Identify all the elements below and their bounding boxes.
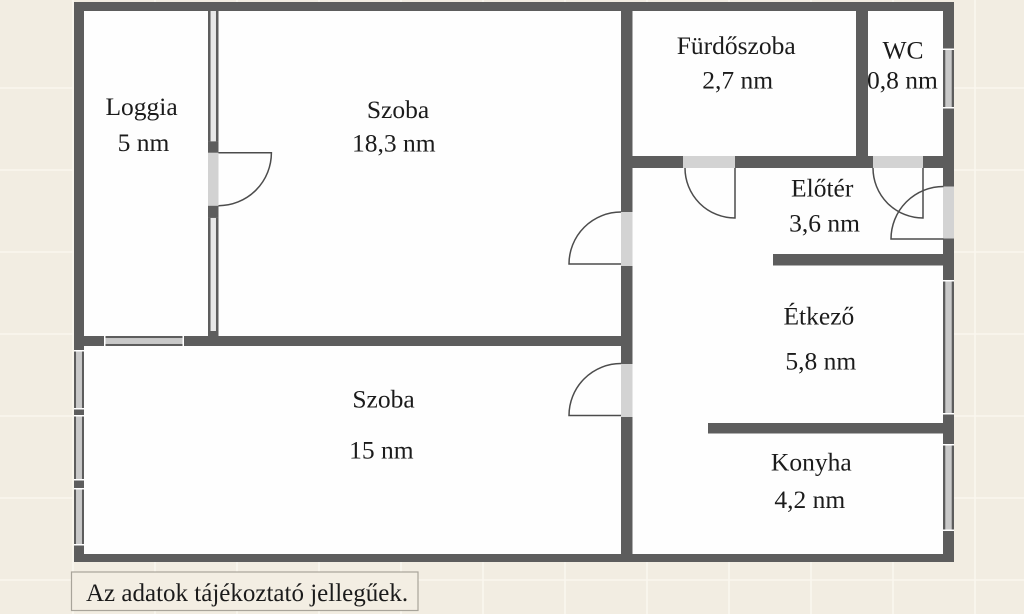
svg-text:Konyha: Konyha <box>771 448 852 477</box>
svg-text:Előtér: Előtér <box>791 174 854 203</box>
svg-text:18,3 nm: 18,3 nm <box>352 129 436 158</box>
svg-text:Szoba: Szoba <box>367 95 429 124</box>
svg-text:0,8 nm: 0,8 nm <box>867 66 938 95</box>
svg-text:Szoba: Szoba <box>352 384 414 413</box>
svg-text:Fürdőszoba: Fürdőszoba <box>677 31 796 60</box>
svg-text:15 nm: 15 nm <box>349 436 414 465</box>
svg-text:5,8 nm: 5,8 nm <box>785 346 856 375</box>
svg-text:Étkező: Étkező <box>783 301 854 330</box>
svg-text:Az adatok tájékoztató jellegűe: Az adatok tájékoztató jellegűek. <box>86 580 408 607</box>
svg-text:Loggia: Loggia <box>105 92 177 121</box>
svg-text:WC: WC <box>882 36 923 65</box>
svg-text:3,6 nm: 3,6 nm <box>789 209 860 238</box>
svg-text:2,7 nm: 2,7 nm <box>702 65 773 94</box>
svg-text:5 nm: 5 nm <box>118 128 170 157</box>
svg-text:4,2 nm: 4,2 nm <box>774 485 845 514</box>
